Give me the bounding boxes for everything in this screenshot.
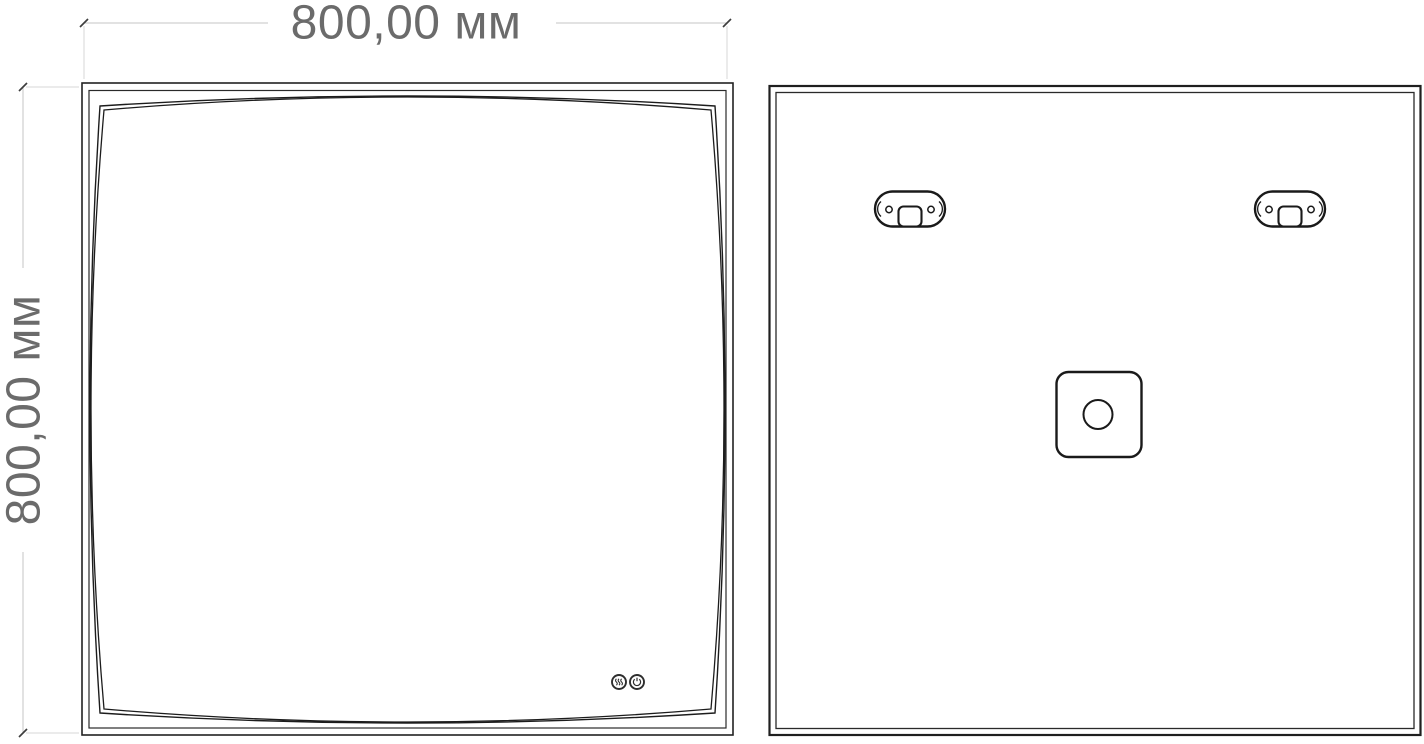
mirror-edge-inner-curve [91, 97, 724, 722]
heated-mirror-icon [612, 675, 626, 689]
technical-drawing: 800,00 мм 800,00 мм [0, 0, 1424, 744]
junction-box [1057, 372, 1142, 457]
bracket-notch [899, 207, 922, 227]
front-view [82, 83, 733, 735]
dimension-height: 800,00 мм [0, 83, 79, 737]
dimension-width: 800,00 мм [80, 0, 731, 79]
junction-box-body [1057, 372, 1142, 457]
front-outer-frame [82, 83, 733, 735]
width-dimension-label: 800,00 мм [291, 0, 522, 50]
mounting-bracket-left [875, 192, 945, 227]
touch-controls [612, 675, 644, 689]
height-dimension-label: 800,00 мм [0, 295, 51, 526]
front-inner-frame [89, 91, 726, 729]
mirror-edge-outer-curve [90, 96, 725, 723]
power-icon [630, 675, 644, 689]
bracket-notch [1279, 207, 1302, 227]
mounting-bracket-right [1255, 192, 1325, 227]
drawing-canvas: 800,00 мм 800,00 мм [0, 0, 1424, 744]
back-view [770, 86, 1421, 735]
